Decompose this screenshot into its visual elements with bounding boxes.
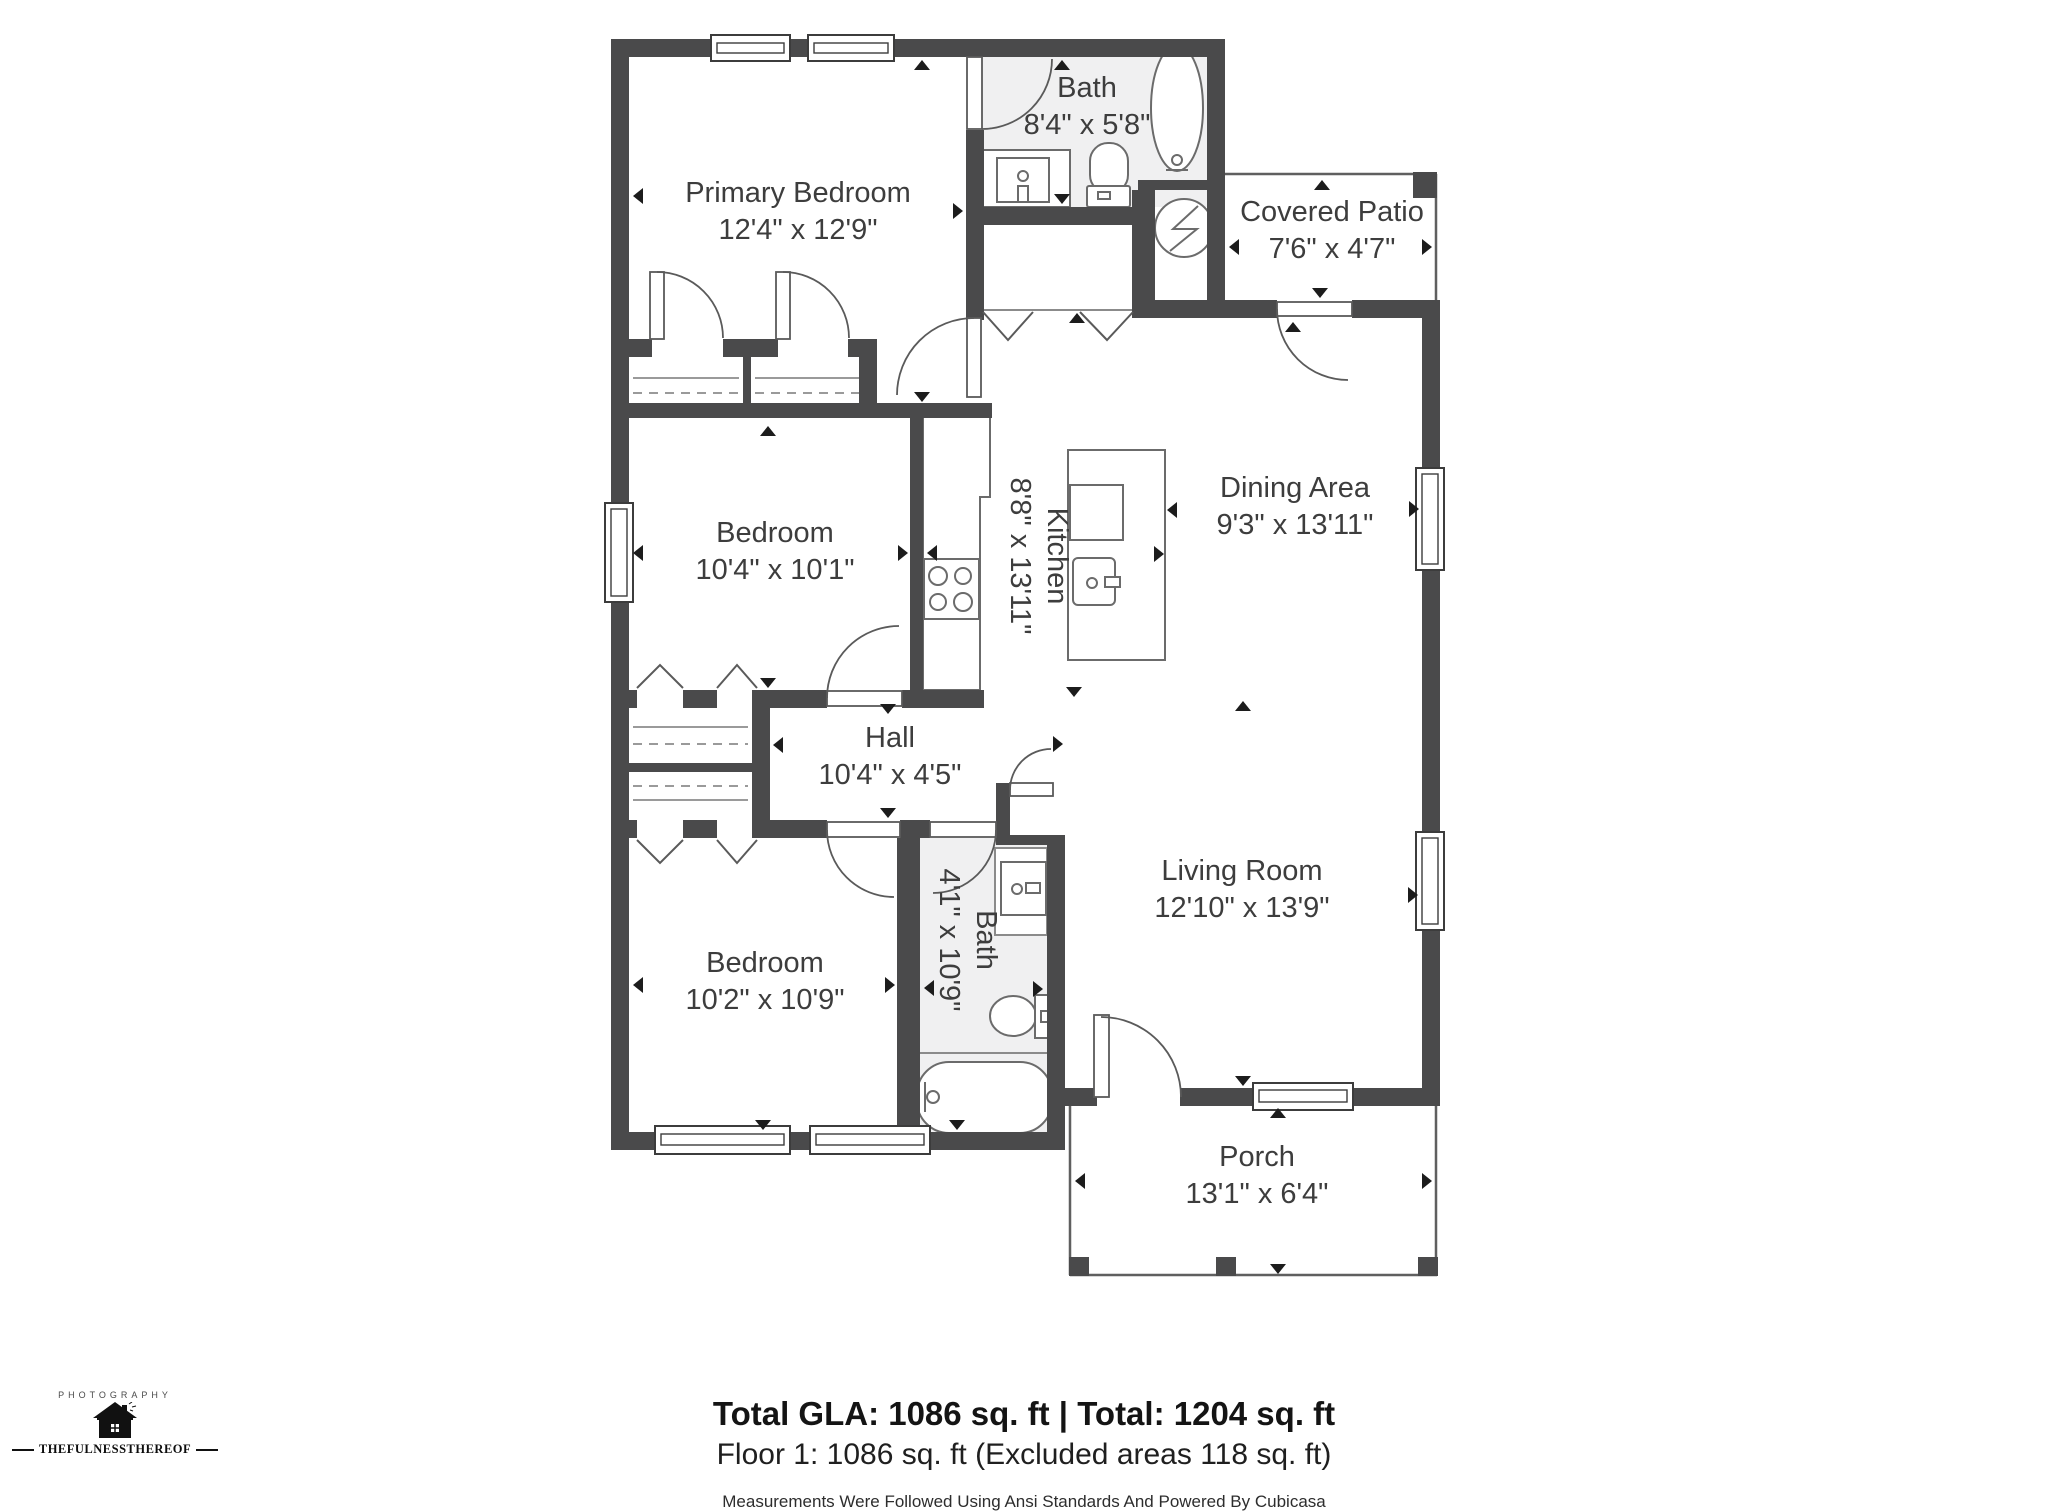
room-dims: 10'2" x 10'9": [685, 982, 844, 1019]
room-dims: 12'10" x 13'9": [1154, 890, 1329, 927]
stove-icon: [924, 559, 979, 619]
room-name: Bedroom: [685, 945, 844, 982]
room-label-bath-bottom: Bath 4'1" x 10'9": [930, 869, 1004, 1012]
room-name: Bath: [967, 869, 1004, 1012]
window: [1416, 832, 1444, 930]
room-dims: 8'8" x 13'11": [1001, 478, 1038, 635]
window: [808, 35, 894, 61]
logo-rule-right: [196, 1449, 218, 1451]
door: [1094, 1015, 1181, 1097]
door: [776, 272, 849, 339]
room-name: Dining Area: [1217, 470, 1374, 507]
room-label-bedroom-middle: Bedroom 10'4" x 10'1": [695, 515, 854, 589]
room-name: Bath: [1024, 70, 1151, 107]
water-heater-icon: [1155, 199, 1213, 257]
room-label-covered-patio: Covered Patio 7'6" x 4'7": [1240, 194, 1424, 268]
room-name: Living Room: [1154, 853, 1329, 890]
room-dims: 9'3" x 13'11": [1217, 507, 1374, 544]
window: [1253, 1083, 1353, 1110]
room-label-dining-area: Dining Area 9'3" x 13'11": [1217, 470, 1374, 544]
room-dims: 13'1" x 6'4": [1186, 1176, 1329, 1213]
logo-bottom-text: THEFULNESSTHEREOF: [39, 1442, 191, 1457]
room-dims: 4'1" x 10'9": [930, 869, 967, 1012]
door: [897, 318, 981, 397]
room-dims: 12'4" x 12'9": [685, 212, 911, 249]
logo-bottom-row: THEFULNESSTHEREOF: [35, 1442, 195, 1457]
toilet-icon: [1087, 143, 1130, 207]
room-name: Hall: [819, 720, 962, 757]
logo-top-text: PHOTOGRAPHY: [35, 1390, 195, 1400]
house-icon: [89, 1402, 141, 1440]
sink-icon: [983, 150, 1070, 207]
total-area-text: Total GLA: 1086 sq. ft | Total: 1204 sq.…: [0, 1395, 2048, 1433]
room-dims: 10'4" x 10'1": [695, 552, 854, 589]
door: [1010, 749, 1053, 796]
room-dims: 10'4" x 4'5": [819, 757, 962, 794]
door: [650, 272, 723, 339]
floor-plan-svg: [0, 0, 2048, 1512]
room-label-kitchen: Kitchen 8'8" x 13'11": [1001, 478, 1075, 635]
kitchen-island: [1068, 450, 1165, 660]
room-name: Porch: [1186, 1139, 1329, 1176]
room-name: Primary Bedroom: [685, 175, 911, 212]
room-name: Kitchen: [1038, 478, 1075, 635]
bathtub-icon: [1151, 45, 1203, 171]
door: [827, 822, 900, 897]
floor-area-text: Floor 1: 1086 sq. ft (Excluded areas 118…: [0, 1438, 2048, 1472]
window: [810, 1126, 930, 1154]
room-dims: 8'4" x 5'8": [1024, 107, 1151, 144]
door: [827, 626, 902, 706]
window: [655, 1126, 790, 1154]
room-label-bath-top: Bath 8'4" x 5'8": [1024, 70, 1151, 144]
floor-plan-page: Primary Bedroom 12'4" x 12'9" Bath 8'4" …: [0, 0, 2048, 1512]
window: [1416, 468, 1444, 570]
room-name: Bedroom: [695, 515, 854, 552]
window: [711, 35, 790, 61]
logo-rule-left: [12, 1449, 34, 1451]
summary-footer: Total GLA: 1086 sq. ft | Total: 1204 sq.…: [0, 1395, 2048, 1512]
window: [605, 503, 633, 602]
room-label-porch: Porch 13'1" x 6'4": [1186, 1139, 1329, 1213]
room-name: Covered Patio: [1240, 194, 1424, 231]
room-label-bedroom-bottom: Bedroom 10'2" x 10'9": [685, 945, 844, 1019]
room-label-living-room: Living Room 12'10" x 13'9": [1154, 853, 1329, 927]
photographer-logo: PHOTOGRAPHY THEFULNESSTHEREOF: [35, 1390, 195, 1457]
room-label-hall: Hall 10'4" x 4'5": [819, 720, 962, 794]
bathtub-icon: [917, 1062, 1052, 1133]
disclaimer-text: Measurements Were Followed Using Ansi St…: [0, 1492, 2048, 1512]
room-label-primary-bedroom: Primary Bedroom 12'4" x 12'9": [685, 175, 911, 249]
door: [1277, 302, 1352, 380]
room-dims: 7'6" x 4'7": [1240, 231, 1424, 268]
